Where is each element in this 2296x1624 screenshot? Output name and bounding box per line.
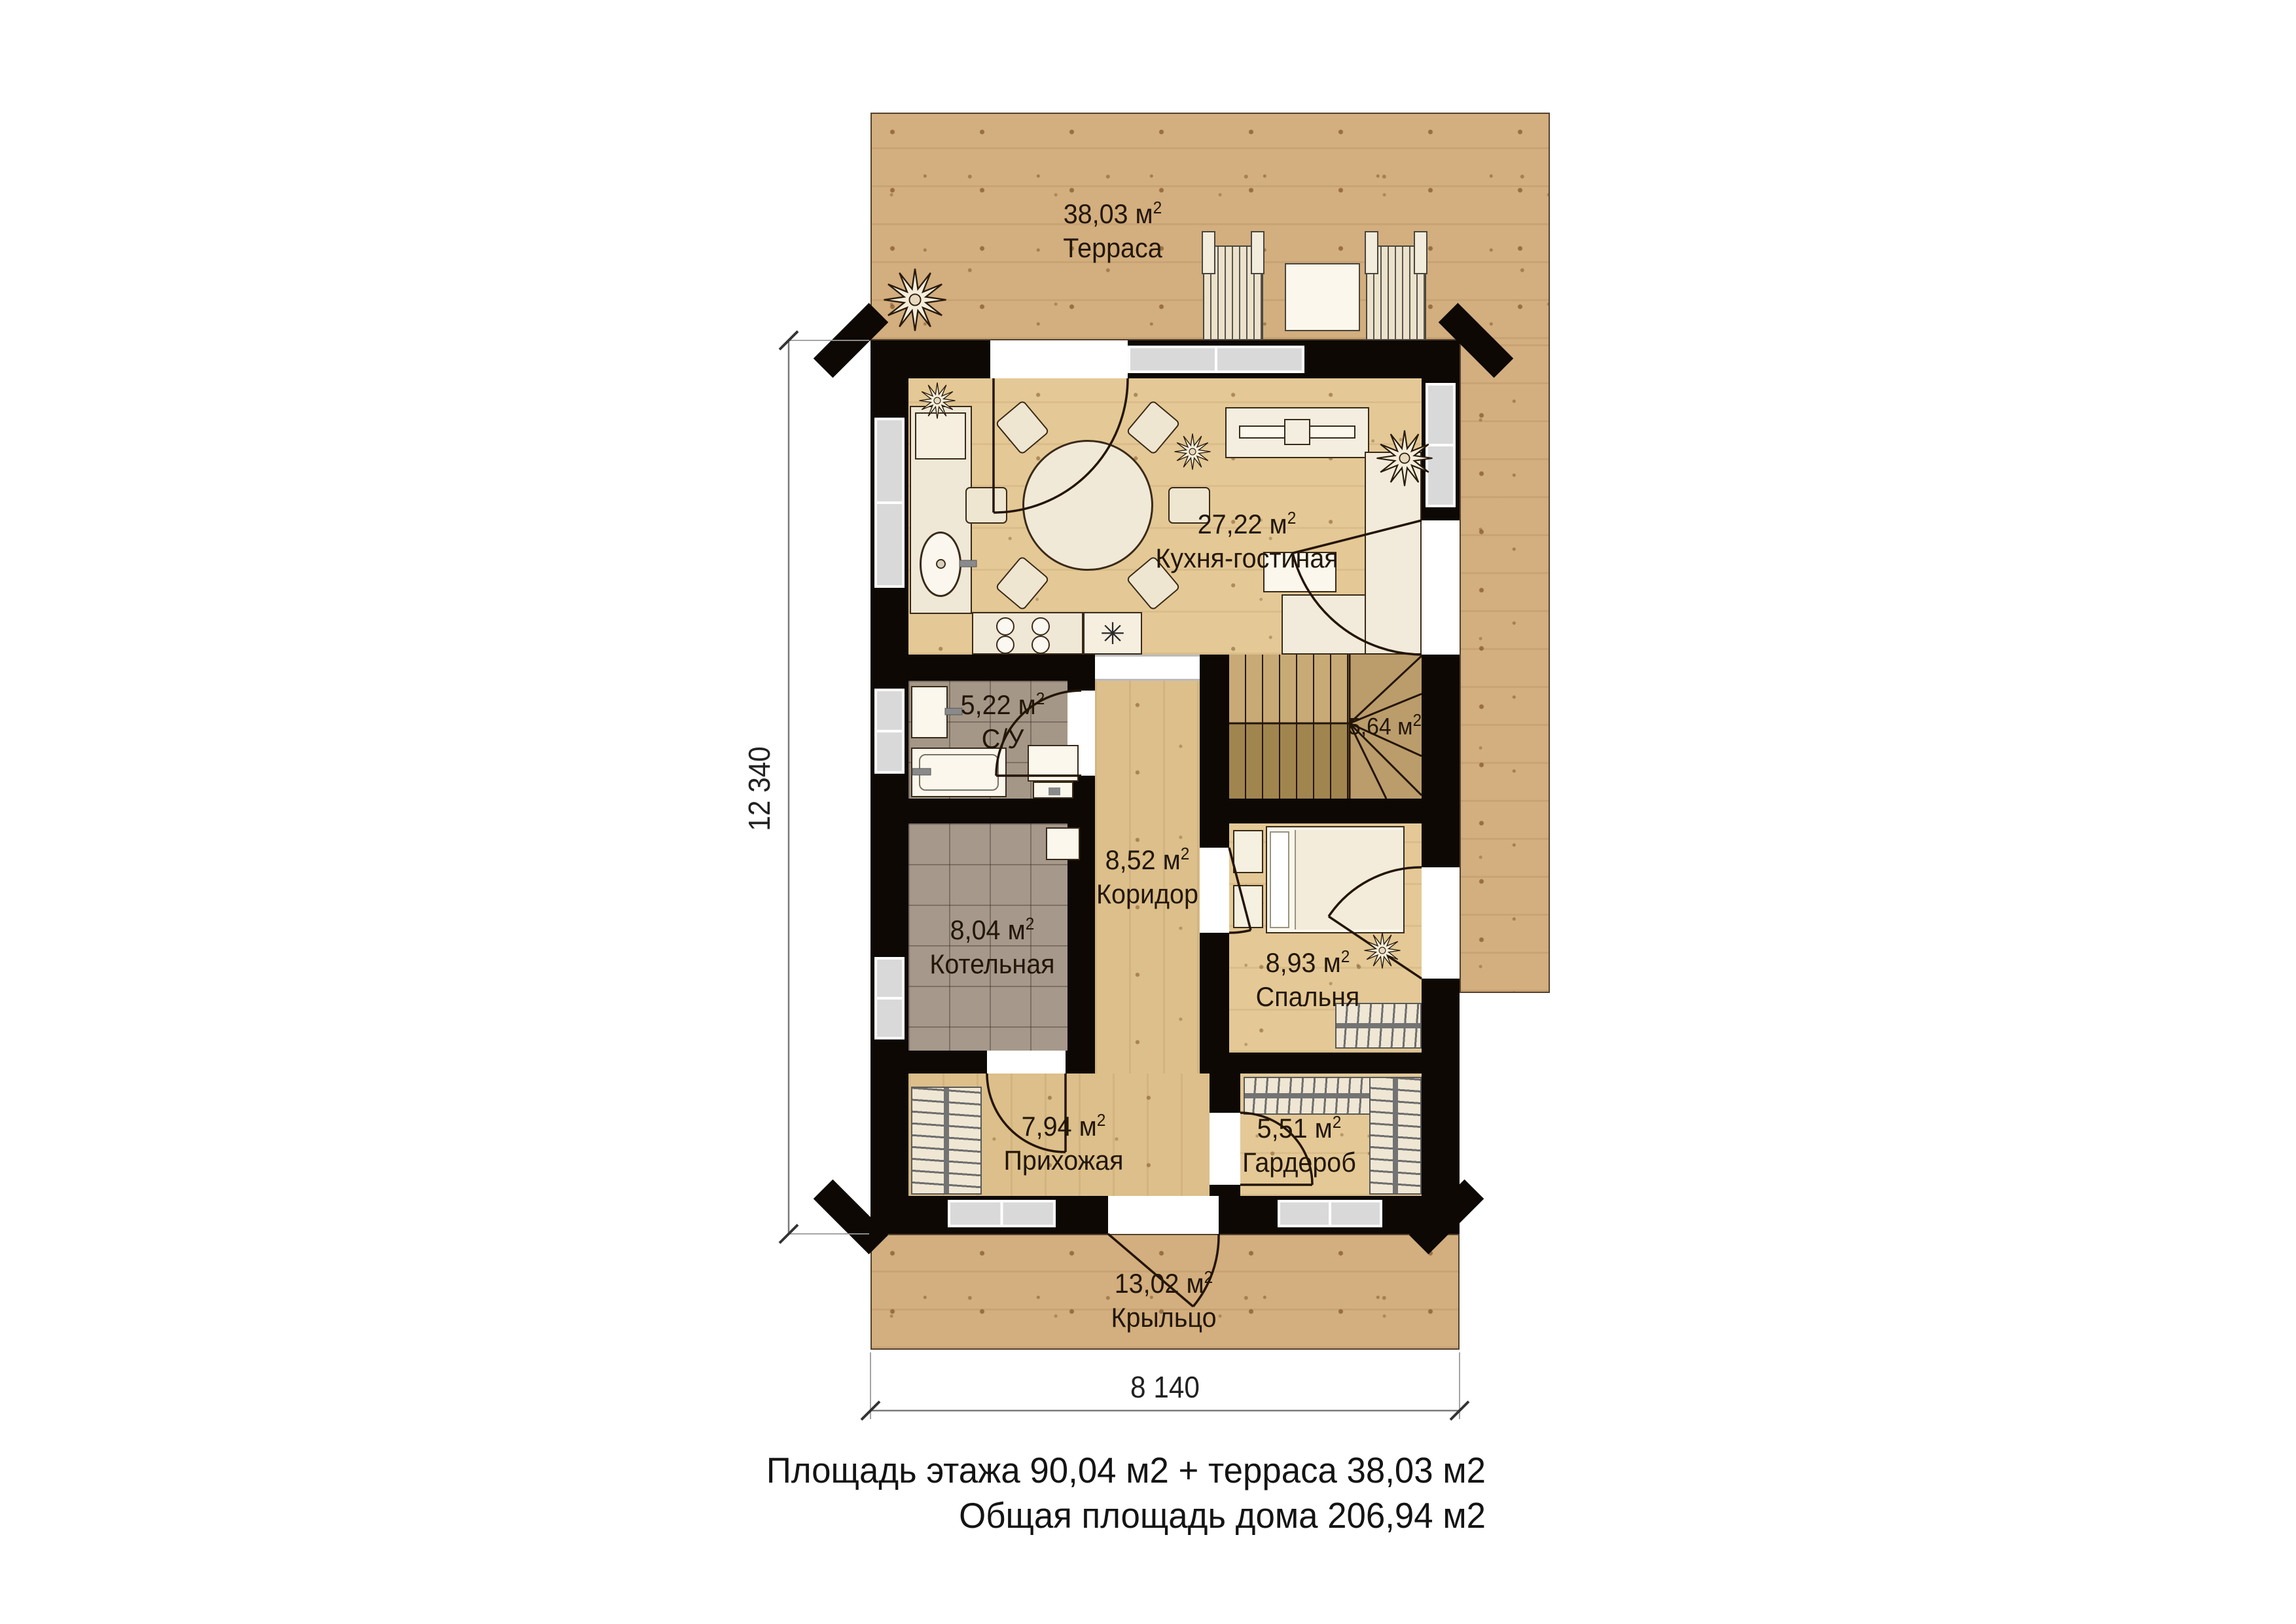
- freezer-icon: ✳: [1100, 617, 1126, 651]
- kitchen-entry-opening: [990, 340, 1128, 378]
- room-label-stairs: 5,64м2: [1348, 703, 1422, 744]
- bathtub-inner: [919, 754, 999, 791]
- rack-rail: [1393, 1078, 1398, 1193]
- room-label-corridor: 8,52м2 Коридор: [1096, 837, 1198, 911]
- hob-burner: [996, 617, 1014, 636]
- room-label-wardrobe: 5,51м2 Гардероб: [1242, 1105, 1356, 1180]
- lounge-chair-post: [1251, 231, 1265, 274]
- room-label-boiler: 8,04м2 Котельная: [929, 907, 1054, 981]
- lounge-chair-post: [1414, 231, 1427, 274]
- wall-below-stairs: [1200, 799, 1422, 823]
- wardrobe-rack-right: [1369, 1077, 1422, 1195]
- freezer-cabinet: ✳: [1083, 612, 1142, 655]
- entrance-door-opening: [1108, 1196, 1219, 1234]
- kitchen-right-window: [1426, 383, 1456, 507]
- rack-rail: [944, 1088, 949, 1193]
- wardrobe-window: [1278, 1200, 1382, 1227]
- kitchen-terrace-door-opening: [1422, 520, 1460, 655]
- stairs-upper-flight: [1229, 655, 1350, 723]
- bedroom-terrace-door-opening: [1422, 867, 1460, 979]
- kitchen-counter-bottom: [972, 612, 1083, 655]
- dining-chair: [965, 487, 1007, 524]
- wardrobe-door-opening: [1210, 1113, 1240, 1185]
- dimension-height: 12 340: [742, 723, 777, 855]
- toilet-tank: [1033, 782, 1073, 799]
- boiler-unit: [1046, 827, 1080, 860]
- bed-blanket: [1295, 830, 1402, 929]
- room-label-porch: 13,02м2 Крыльцо: [1111, 1260, 1216, 1335]
- tv-stand: [1284, 419, 1310, 445]
- toilet-button: [1049, 787, 1060, 795]
- wall-bedroom-wardrobe: [1229, 1053, 1422, 1074]
- rack-rail: [1336, 1023, 1420, 1028]
- hallway-coat-rack: [911, 1087, 982, 1195]
- room-label-kitchen: 27,22м2 Кухня-гостиная: [1155, 501, 1338, 575]
- room-label-terrace: 38,03м2 Терраса: [1063, 190, 1162, 265]
- hob-burner: [1031, 617, 1050, 636]
- bedroom-door-opening: [1200, 848, 1229, 933]
- terrace-table: [1285, 263, 1360, 331]
- lounge-chair: [1366, 245, 1426, 340]
- dining-table: [1022, 440, 1153, 571]
- stairs-lower-flight: [1229, 723, 1350, 799]
- lounge-chair-post: [1202, 231, 1215, 274]
- total-area-line: Общая площадь дома 206,94 м2: [688, 1493, 1486, 1538]
- kitchen-top-window: [1128, 346, 1304, 373]
- bed-pillow: [1270, 831, 1289, 928]
- floor-area-line: Площадь этажа 90,04 м2 + терраса 38,03 м…: [688, 1448, 1486, 1493]
- wall-bathroom-boiler: [908, 799, 1095, 823]
- sofa-right-section: [1365, 452, 1422, 655]
- kitchen-left-window: [874, 418, 905, 588]
- sink-drain: [936, 559, 946, 569]
- floor-plan-canvas: ✳: [0, 0, 2296, 1624]
- nightstand: [1233, 830, 1263, 873]
- hob-burner: [996, 636, 1014, 654]
- bed: [1266, 826, 1405, 933]
- room-label-bedroom: 8,93м2 Спальня: [1256, 939, 1360, 1014]
- corridor-kitchen-opening: [1095, 655, 1200, 681]
- terrace-deck-right: [1460, 339, 1550, 993]
- area-summary: Площадь этажа 90,04 м2 + терраса 38,03 м…: [688, 1448, 1486, 1538]
- lounge-chair: [1203, 245, 1263, 340]
- sofa-bottom-section: [1282, 594, 1366, 655]
- cutting-board: [915, 412, 966, 460]
- washbasin: [911, 686, 948, 738]
- hob-burner: [1031, 636, 1050, 654]
- hallway-window: [948, 1200, 1056, 1227]
- nightstand: [1233, 885, 1263, 928]
- wall-kitchen-bathroom: [908, 655, 1095, 681]
- boiler-window: [874, 957, 905, 1039]
- room-label-bathroom: 5,22м2 С/У: [961, 681, 1045, 756]
- dimension-width: 8 140: [1105, 1369, 1225, 1405]
- lounge-chair-post: [1365, 231, 1378, 274]
- room-label-hallway: 7,94м2 Прихожая: [1004, 1103, 1124, 1178]
- bathroom-window: [874, 689, 905, 774]
- boiler-door-opening: [987, 1051, 1066, 1074]
